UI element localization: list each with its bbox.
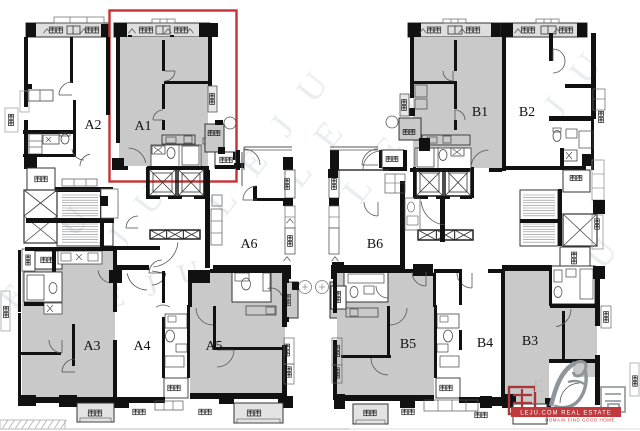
svg-text:B2: B2: [519, 105, 535, 120]
svg-text:A4: A4: [133, 339, 150, 354]
svg-text:B1: B1: [472, 105, 488, 120]
svg-text:B3: B3: [522, 334, 538, 349]
svg-text:DOMAIN FIND GOOD HOME: DOMAIN FIND GOOD HOME: [545, 418, 615, 423]
svg-text:B5: B5: [400, 337, 416, 352]
svg-text:B4: B4: [477, 336, 493, 351]
svg-text:A2: A2: [84, 118, 101, 133]
svg-text:A5: A5: [205, 339, 222, 354]
svg-text:A3: A3: [83, 339, 100, 354]
svg-text:B6: B6: [367, 237, 383, 252]
svg-text:E: E: [533, 376, 544, 396]
svg-text:LEJU.COM REAL ESTATE: LEJU.COM REAL ESTATE: [520, 411, 612, 417]
svg-text:A1: A1: [134, 119, 151, 134]
svg-text:A6: A6: [240, 237, 257, 252]
